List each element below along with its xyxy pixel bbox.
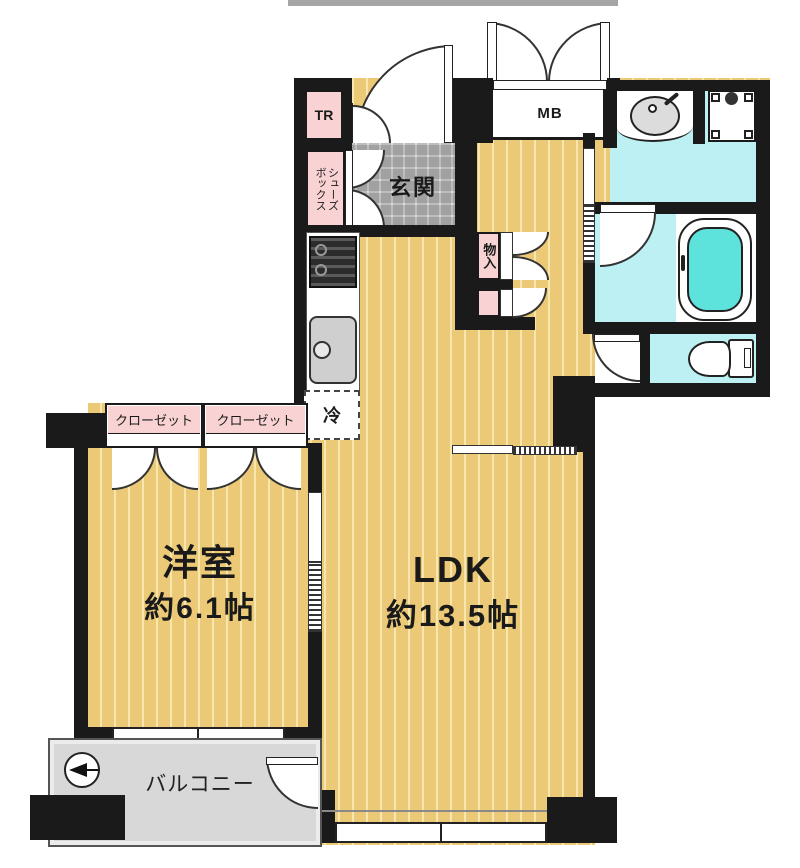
storage-box: 物入 (477, 232, 500, 280)
stove-icon (309, 236, 357, 288)
storage-lower-door-panel (500, 289, 513, 317)
washroom-divider-wall (693, 88, 705, 144)
storage-label: 物入 (482, 243, 496, 269)
balcony-partition-block (30, 795, 125, 840)
partition-slider-opening (308, 492, 322, 562)
evacuation-hatch-icon (64, 752, 100, 788)
west-left-wall (74, 448, 88, 727)
partition-wall-top (308, 443, 322, 492)
toilet-bottom-wall (583, 383, 770, 397)
partition-slider-panel (308, 562, 322, 632)
closet2-label: クローゼット (206, 406, 305, 434)
shoes-box-door-leaf (345, 150, 353, 228)
ldk-name: LDK (373, 548, 533, 592)
shoes-box-label-line2: ボックス (313, 167, 325, 211)
washer-pan-corner-bl (711, 130, 720, 139)
ldk-window-tick (440, 822, 442, 843)
evacuation-arrow-line-icon (86, 769, 98, 771)
closet2: クローゼット (203, 403, 308, 448)
washer-faucet-icon (725, 92, 738, 105)
balcony-door-leaf (266, 757, 318, 765)
ldk-sill-line (322, 810, 583, 812)
top-edge-strip (288, 0, 618, 6)
washroom-slider-wall-top (583, 133, 595, 148)
entrance-label: 玄関 (368, 172, 458, 200)
evacuation-arrow-icon (69, 763, 87, 777)
mb-door-left-leaf (487, 22, 497, 82)
fridge-space: 冷 (304, 390, 360, 440)
washer-pan-corner-tl (711, 93, 720, 102)
toilet-door-leaf (594, 334, 640, 342)
washer-pan-corner-br (744, 130, 753, 139)
mb-panel (493, 80, 607, 90)
storage-box-lower (477, 289, 500, 317)
western-room-name: 洋室 (120, 538, 280, 582)
floorplan: 玄関 TR シューズ ボックス MB (0, 0, 800, 868)
ldk-size: 約13.5帖 (363, 592, 543, 632)
outer-wall-right (756, 80, 770, 397)
bathroom-door-leaf (600, 204, 656, 213)
top-wall-right (607, 80, 770, 91)
bathtub-handle-icon (681, 255, 685, 271)
balcony-label: バルコニー (135, 770, 265, 796)
outside-bottom (46, 845, 770, 868)
ldk-step-block (553, 376, 595, 452)
washroom-slider-panel (583, 205, 595, 263)
stove-burner-icon (315, 244, 327, 256)
storage-divider-wall (477, 280, 513, 289)
toilet-left-wall (640, 334, 650, 383)
ldk-bottom-right-block (547, 797, 617, 843)
shoes-box-label-line1: シューズ (326, 167, 338, 211)
washer-pan-corner-tr (744, 93, 753, 102)
trunk-room-label: TR (305, 90, 343, 140)
washroom-slider-opening (583, 148, 595, 205)
ldk-divider-opening (452, 445, 513, 454)
washbasin-icon (630, 96, 680, 136)
outside-top-left (46, 78, 294, 403)
entry-corner-block (453, 78, 482, 143)
bathroom-bottom-wall (583, 322, 770, 334)
outside-right-notch (595, 397, 770, 845)
stove-burner2-icon (315, 264, 327, 276)
mb-door-right-leaf (600, 22, 610, 82)
entrance-right-wall (455, 143, 477, 327)
western-room-size: 約6.1帖 (110, 585, 290, 625)
bathtub-icon (687, 227, 743, 312)
shoes-box: シューズ ボックス (306, 150, 345, 228)
closet1-label: クローゼット (108, 406, 200, 434)
washroom-left-wall (603, 90, 617, 148)
storage-bottom-cap-wall (455, 317, 535, 330)
storage-door-panel (500, 232, 513, 280)
mb-wall-left (482, 78, 493, 143)
toilet-bowl-icon (688, 341, 731, 377)
washbasin-drain-icon (648, 104, 657, 113)
sink-faucet-icon (313, 341, 331, 359)
closet1: クローゼット (105, 403, 203, 448)
toilet-button-icon (744, 348, 751, 368)
ldk-right-wall (583, 452, 595, 800)
entrance-door-leaf (444, 45, 453, 143)
west-corner-block (46, 413, 112, 448)
ldk-divider-panel (513, 446, 577, 455)
